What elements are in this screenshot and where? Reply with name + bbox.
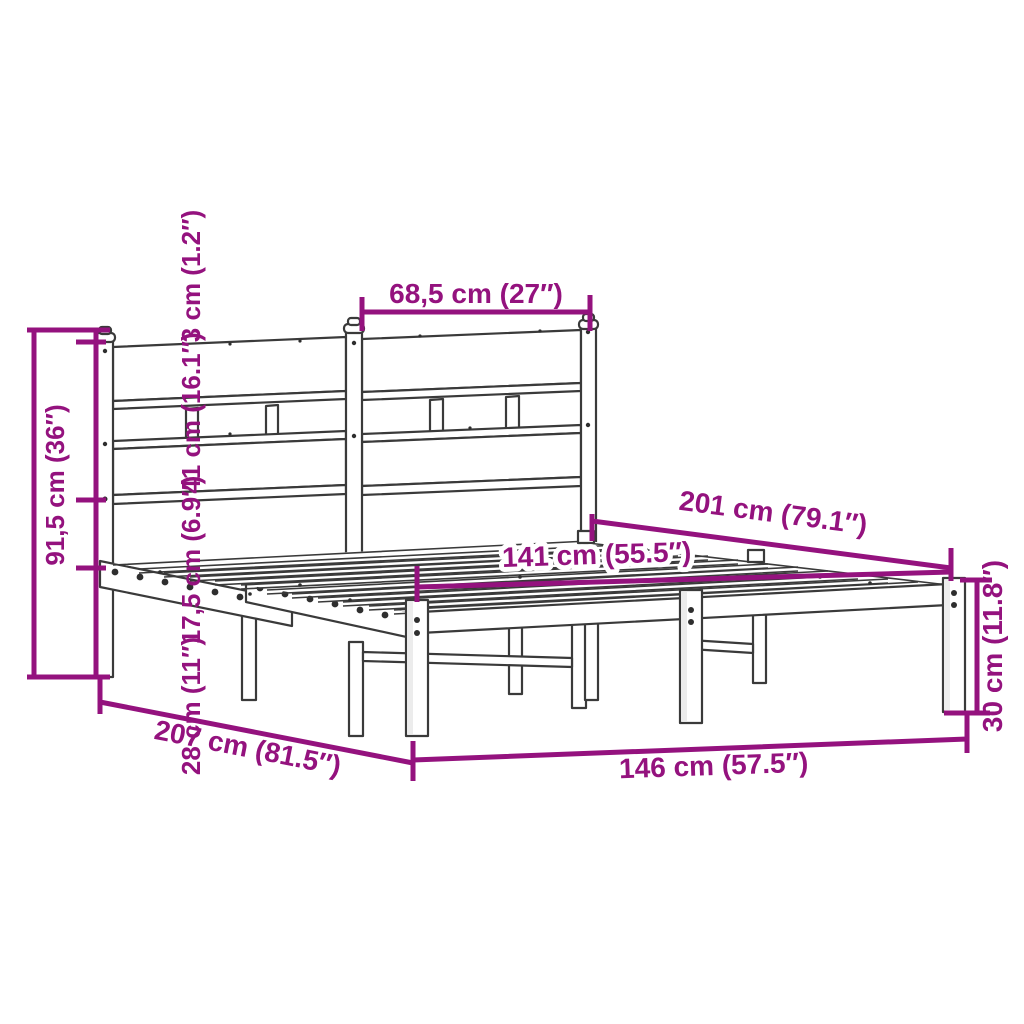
dim-footend-height-label: 30 cm (11.8″) <box>977 560 1008 732</box>
dim-headboard-total-height-label: 91,5 cm (36″) <box>40 404 70 565</box>
dim-headboard-section-width-label: 68,5 cm (27″) <box>389 278 563 309</box>
headboard-left-section <box>113 337 346 504</box>
dim-frame-length-label: 201 cm (79.1″) <box>677 485 869 540</box>
dim-headboard-top-cap-label: 3 cm (1.2″) <box>176 210 206 342</box>
dim-slat-area-width-label: 141 cm (55.5″) <box>502 536 692 573</box>
bed-frame-diagram: 91,5 cm (36″) 3 cm (1.2″) 41 cm (16.1″) … <box>0 0 1024 1024</box>
dim-headboard-panel-label: 41 cm (16.1″) <box>176 332 206 493</box>
product-dimension-diagram: 91,5 cm (36″) 3 cm (1.2″) 41 cm (16.1″) … <box>0 0 1024 1024</box>
dim-total-width-label: 146 cm (57.5″) <box>619 747 809 785</box>
dim-headboard-gap-label: 17,5 cm (6.9″) <box>176 476 206 645</box>
dim-headboard-section-width: 68,5 cm (27″) <box>362 278 590 331</box>
dim-under-bed-clearance-label: 28 cm (11″) <box>176 637 206 775</box>
